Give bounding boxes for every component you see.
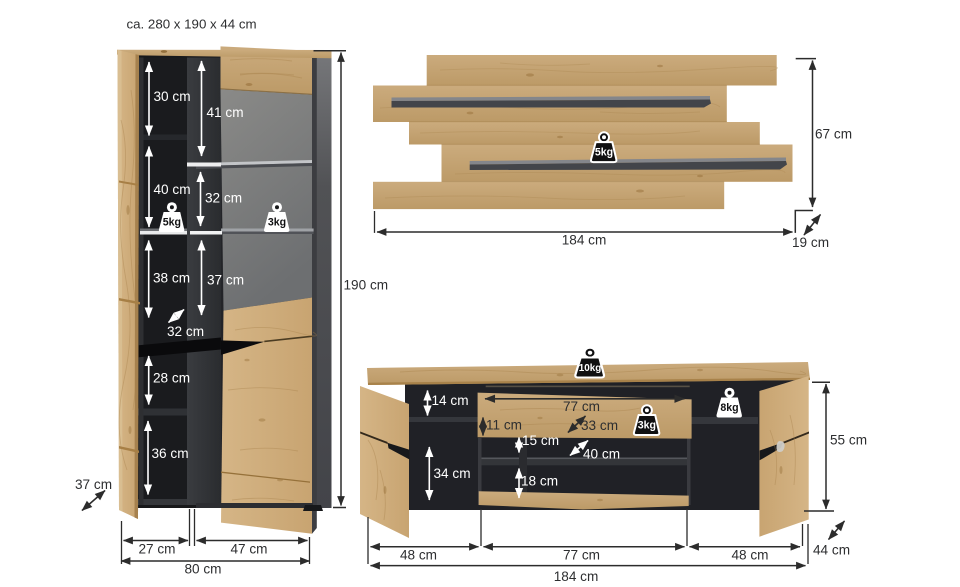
svg-text:28 cm: 28 cm: [153, 371, 190, 386]
svg-text:3kg: 3kg: [638, 420, 656, 432]
svg-text:184 cm: 184 cm: [562, 233, 607, 248]
svg-text:44 cm: 44 cm: [813, 543, 850, 558]
svg-text:36 cm: 36 cm: [152, 446, 189, 461]
svg-text:38 cm: 38 cm: [153, 271, 190, 286]
svg-text:37 cm: 37 cm: [75, 477, 112, 492]
svg-text:32 cm: 32 cm: [167, 324, 204, 339]
svg-text:33 cm: 33 cm: [581, 418, 618, 433]
svg-text:37 cm: 37 cm: [207, 273, 244, 288]
svg-text:30 cm: 30 cm: [154, 89, 191, 104]
svg-text:18 cm: 18 cm: [521, 474, 558, 489]
svg-text:77 cm: 77 cm: [563, 548, 600, 563]
svg-text:10kg: 10kg: [579, 363, 602, 374]
svg-text:5kg: 5kg: [163, 217, 181, 229]
svg-text:19 cm: 19 cm: [792, 235, 829, 250]
svg-text:55 cm: 55 cm: [830, 433, 867, 448]
svg-text:77 cm: 77 cm: [563, 399, 600, 414]
svg-text:34 cm: 34 cm: [434, 466, 471, 481]
svg-text:15 cm: 15 cm: [522, 433, 559, 448]
svg-text:5kg: 5kg: [595, 147, 613, 159]
svg-text:40 cm: 40 cm: [154, 182, 191, 197]
svg-text:27 cm: 27 cm: [138, 542, 175, 557]
svg-text:32 cm: 32 cm: [205, 191, 242, 206]
svg-text:11 cm: 11 cm: [486, 418, 522, 433]
svg-text:184 cm: 184 cm: [554, 569, 599, 584]
svg-text:80 cm: 80 cm: [184, 562, 221, 577]
svg-text:41 cm: 41 cm: [207, 105, 244, 120]
svg-text:67 cm: 67 cm: [815, 127, 852, 142]
svg-text:40 cm: 40 cm: [583, 447, 620, 462]
svg-text:47 cm: 47 cm: [230, 542, 267, 557]
svg-text:190 cm: 190 cm: [344, 278, 389, 293]
svg-text:14 cm: 14 cm: [432, 393, 469, 408]
svg-text:ca. 280 x 190 x 44 cm: ca. 280 x 190 x 44 cm: [127, 17, 257, 32]
svg-text:3kg: 3kg: [268, 217, 286, 229]
svg-text:48 cm: 48 cm: [400, 548, 437, 563]
svg-text:8kg: 8kg: [720, 402, 738, 414]
svg-text:48 cm: 48 cm: [731, 548, 768, 563]
